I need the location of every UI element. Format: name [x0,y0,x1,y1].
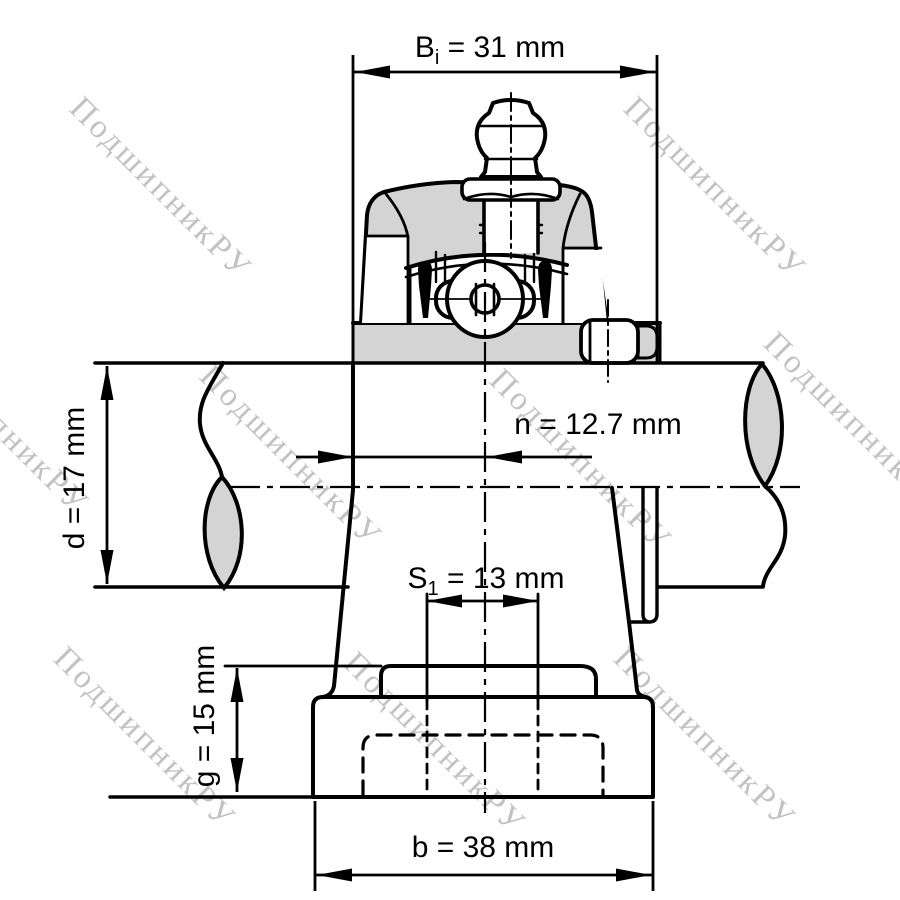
housing-flank-right [563,250,607,323]
dimension-n-label: n = 12.7 mm [514,408,682,441]
housing-flank-left [362,237,408,323]
dimension-d-label: d = 17 mm [58,407,91,550]
dimension-b-label: b = 38 mm [412,831,555,864]
dimension-g-label: g = 15 mm [188,645,221,788]
drawing-canvas: ПодшипникРУ ПодшипникРУ ПодшипникРУ Подш… [0,0,900,900]
technical-drawing: ПодшипникРУ ПодшипникРУ ПодшипникРУ Подш… [0,0,900,900]
